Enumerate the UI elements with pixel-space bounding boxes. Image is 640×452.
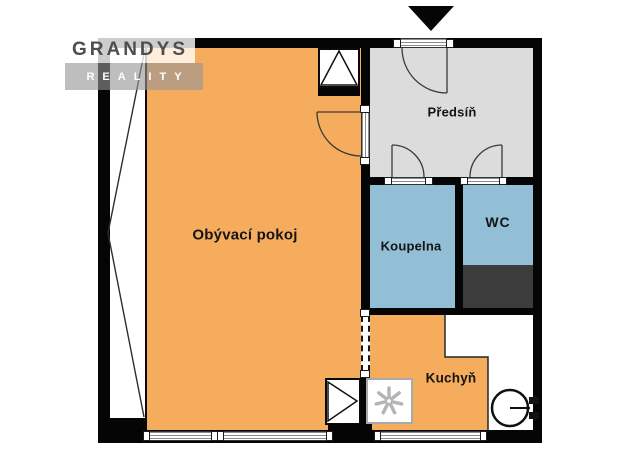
window-frame-cap bbox=[143, 431, 150, 441]
door-frame-cap bbox=[384, 177, 392, 185]
door-frame-cap bbox=[393, 39, 401, 48]
room-label-wc: WC bbox=[485, 214, 510, 230]
room-label-kitchen: Kuchyň bbox=[426, 371, 477, 386]
window-mullion bbox=[217, 431, 224, 441]
bathroom-door-threshold bbox=[390, 177, 428, 185]
kitchen-passage-dashed bbox=[361, 316, 370, 371]
duct-top-bar bbox=[318, 88, 360, 96]
passage-frame-cap bbox=[360, 309, 370, 317]
window-bay-left bbox=[110, 48, 147, 418]
agency-logo-tagline: REALITY bbox=[65, 63, 203, 90]
duct-icon-bottom bbox=[325, 378, 361, 425]
passage-frame-cap bbox=[360, 370, 370, 378]
entrance-door-threshold bbox=[400, 38, 447, 48]
door-frame-cap bbox=[499, 177, 507, 185]
stove-icon bbox=[366, 378, 413, 424]
kitchen-window bbox=[381, 431, 481, 441]
window-frame-cap bbox=[374, 431, 381, 441]
room-label-bathroom: Koupelna bbox=[381, 239, 442, 254]
door-frame-cap bbox=[425, 177, 433, 185]
service-shaft bbox=[463, 265, 533, 308]
door-frame-cap bbox=[360, 105, 370, 113]
agency-logo-name: GRANDYS bbox=[65, 37, 195, 63]
room-kitchen-floor-orange bbox=[445, 357, 488, 430]
door-frame-cap bbox=[360, 157, 370, 165]
living-room-window bbox=[149, 431, 327, 441]
floor-plan-canvas: Obývací pokoj Předsíň Koupelna WC Kuchyň… bbox=[0, 0, 640, 452]
wall-exterior-left bbox=[98, 38, 110, 442]
room-label-living: Obývací pokoj bbox=[192, 227, 297, 244]
window-frame-cap bbox=[480, 431, 487, 441]
wc-door-threshold bbox=[466, 177, 502, 185]
duct-bottom-bar bbox=[328, 424, 372, 432]
room-label-hall: Předsíň bbox=[427, 105, 476, 120]
duct-icon-top bbox=[318, 48, 360, 88]
window-frame-cap bbox=[326, 431, 333, 441]
door-frame-cap bbox=[460, 177, 468, 185]
living-door-threshold bbox=[361, 112, 370, 158]
wall-partition-bath-wc bbox=[455, 185, 463, 308]
entrance-arrow-icon bbox=[408, 6, 454, 31]
wall-partition-kitchen bbox=[361, 308, 533, 315]
wall-exterior-right bbox=[533, 38, 542, 442]
agency-logo: GRANDYS REALITY bbox=[65, 37, 195, 90]
door-frame-cap bbox=[446, 39, 454, 48]
